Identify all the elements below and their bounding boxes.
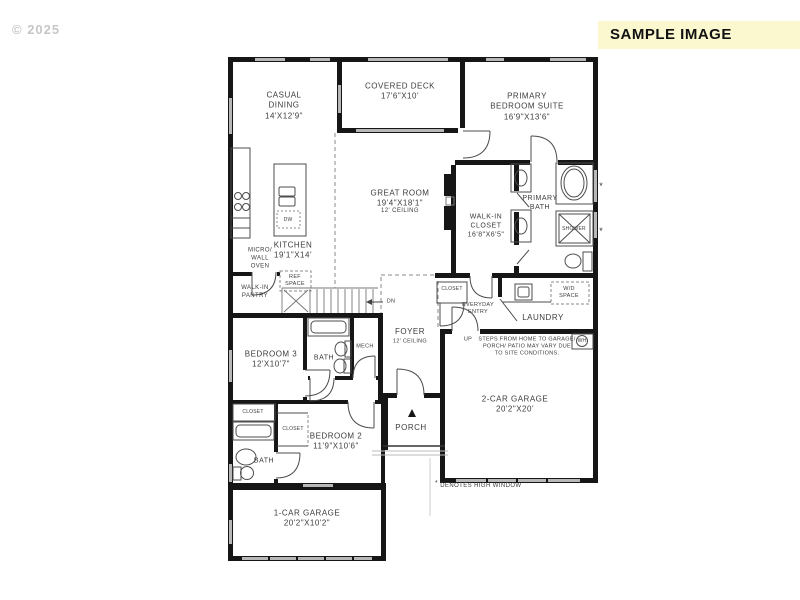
upper-bath-fixtures bbox=[308, 318, 351, 373]
steps-disclaimer-note: STEPS FROM HOME TO GARAGE/ PORCH/ PATIO … bbox=[478, 336, 575, 357]
room-label-covered-deck: COVERED DECK 17'6"X10' bbox=[365, 82, 435, 103]
mech-label: MECH bbox=[356, 343, 373, 350]
ref-space-label: REF SPACE bbox=[285, 274, 305, 288]
bedroom3-closet-label: CLOSET bbox=[242, 409, 263, 416]
toilet-bowl bbox=[241, 467, 254, 480]
water-heater-label: WH bbox=[578, 338, 587, 345]
high-window-marker: * bbox=[599, 181, 603, 191]
wd-space-label: W/D SPACE bbox=[559, 286, 579, 300]
toilet-tank bbox=[344, 359, 351, 373]
toilet-tank bbox=[233, 467, 241, 480]
room-label-everyday-entry: EVERYDAY ENTRY bbox=[462, 302, 494, 316]
room-label-kitchen: KITCHEN 19'1"X14' bbox=[274, 241, 313, 262]
stairs-down-arrow-icon bbox=[366, 299, 383, 305]
high-window-legend-asterisk: * bbox=[435, 480, 438, 487]
room-label-2car-garage: 2-CAR GARAGE 20'2"X20' bbox=[482, 395, 548, 416]
room-label-bedroom-2: BEDROOM 2 11'9"X10'6" bbox=[310, 432, 363, 453]
room-label-porch: PORCH bbox=[395, 423, 426, 433]
floorplan-page: © 2025 SAMPLE IMAGE bbox=[0, 0, 800, 600]
high-window-legend: * DENOTES HIGH WINDOW bbox=[435, 482, 521, 489]
room-label-bedroom-3: BEDROOM 3 12'X10'7" bbox=[245, 350, 298, 371]
toilet bbox=[583, 252, 592, 271]
room-label-laundry: LAUNDRY bbox=[522, 313, 564, 323]
cooktop-burner bbox=[235, 193, 242, 200]
room-label-primary-suite: PRIMARY BEDROOM SUITE 16'9"X13'6" bbox=[490, 91, 564, 122]
lower-bath-label: BATH bbox=[254, 456, 274, 465]
room-label-great-room: GREAT ROOM 19'4"X18'1" bbox=[371, 189, 430, 210]
kitchen-counter bbox=[231, 148, 250, 218]
high-window-marker: * bbox=[599, 226, 603, 236]
room-label-primary-bath: PRIMARY BATH bbox=[522, 194, 557, 212]
room-label-foyer: FOYER bbox=[395, 327, 425, 337]
shower-label: SHOWER bbox=[562, 226, 586, 233]
foyer-ceiling-note: 12' CEILING bbox=[393, 338, 427, 345]
walk-in-pantry-label: WALK-IN PANTRY bbox=[241, 285, 269, 301]
island-sink bbox=[279, 187, 295, 196]
room-label-1car-garage: 1-CAR GARAGE 20'2"X10'2" bbox=[274, 509, 340, 530]
great-room-ceiling-note: 12' CEILING bbox=[381, 208, 419, 216]
stairs-dn-label: DN bbox=[387, 298, 396, 305]
kitchen-fixtures bbox=[231, 148, 306, 238]
room-label-casual-dining: CASUAL DINING 14'X12'9" bbox=[265, 90, 303, 121]
stairs-up-label: UP bbox=[464, 336, 472, 343]
dishwasher-label: DW bbox=[284, 217, 293, 224]
room-label-walk-in-closet: WALK-IN CLOSET 16'8"X6'5" bbox=[468, 212, 505, 239]
bedroom2-closet-label: CLOSET bbox=[282, 426, 303, 433]
entry-marker-icon bbox=[408, 409, 416, 417]
upper-bath-label: BATH bbox=[314, 353, 334, 362]
micro-wall-oven-label: MICRO/ WALL OVEN bbox=[248, 247, 272, 270]
staircase bbox=[282, 288, 378, 313]
high-window-legend-text: DENOTES HIGH WINDOW bbox=[440, 483, 521, 489]
entry-closet-label: CLOSET bbox=[441, 286, 462, 293]
